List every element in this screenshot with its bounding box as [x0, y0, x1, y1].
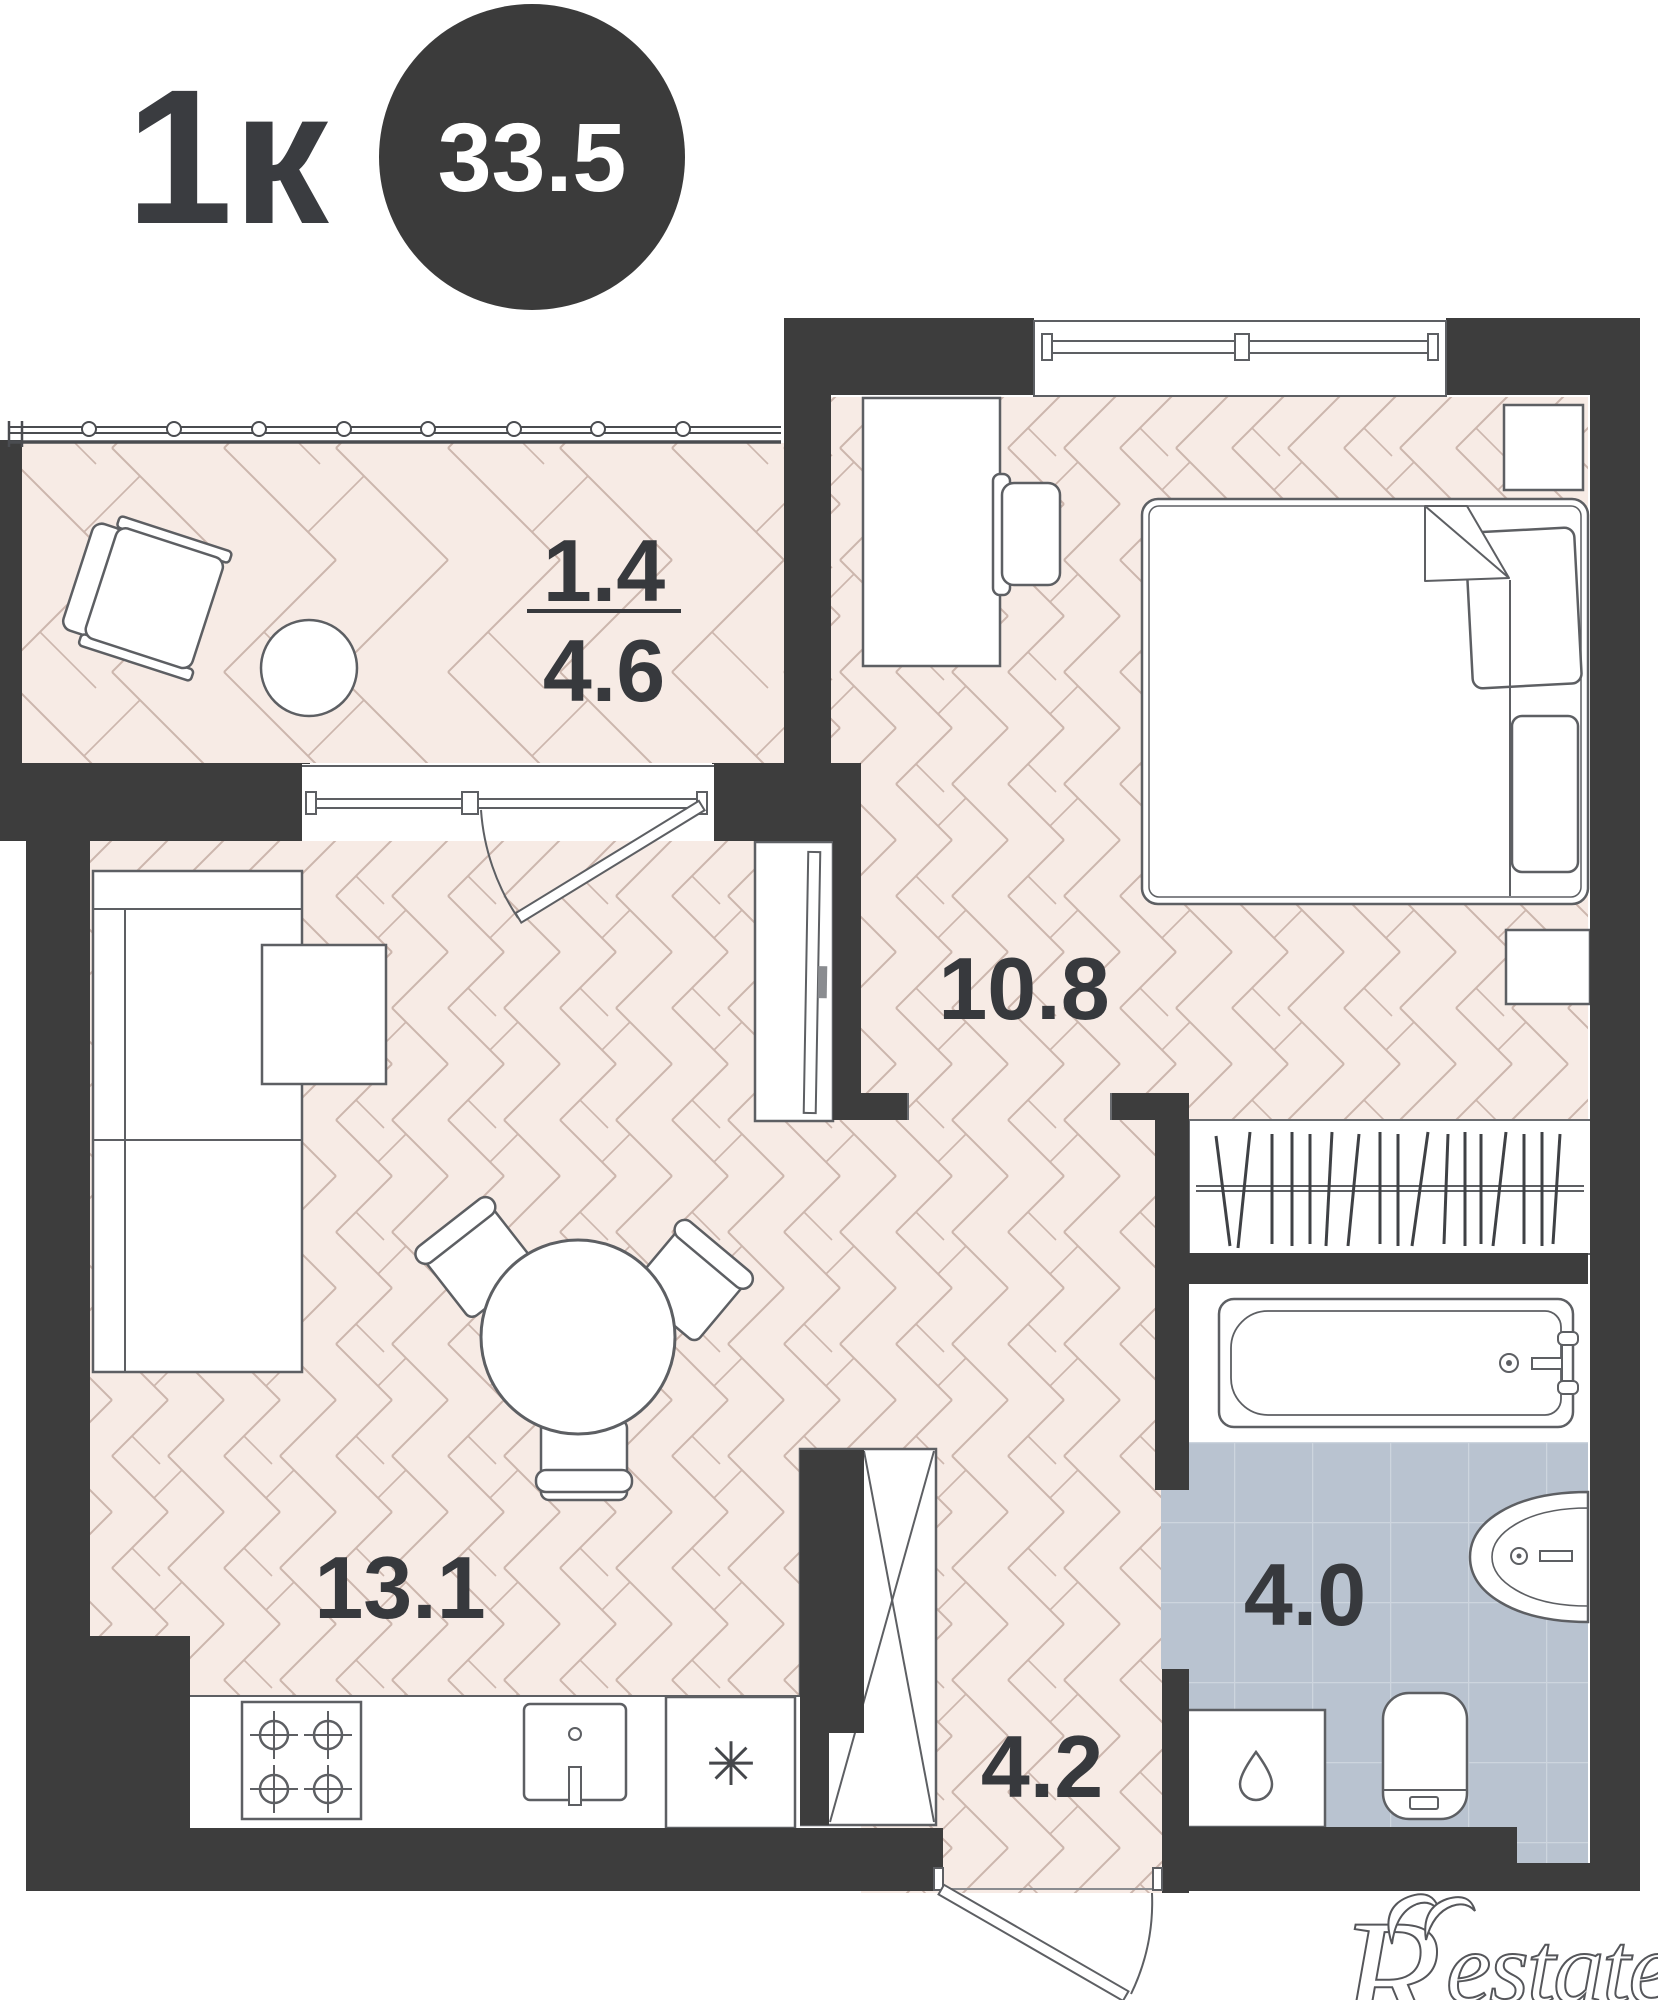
svg-text:1.4: 1.4	[543, 521, 665, 620]
svg-text:33.5: 33.5	[438, 103, 627, 212]
svg-text:✳: ✳	[706, 1731, 756, 1798]
svg-text:estate: estate	[1446, 1912, 1658, 2000]
svg-text:10.8: 10.8	[938, 939, 1109, 1038]
svg-text:13.1: 13.1	[314, 1538, 485, 1637]
svg-text:4.0: 4.0	[1244, 1545, 1366, 1644]
svg-text:1к: 1к	[126, 49, 330, 264]
svg-text:4.2: 4.2	[981, 1717, 1103, 1816]
svg-text:4.6: 4.6	[543, 621, 665, 720]
